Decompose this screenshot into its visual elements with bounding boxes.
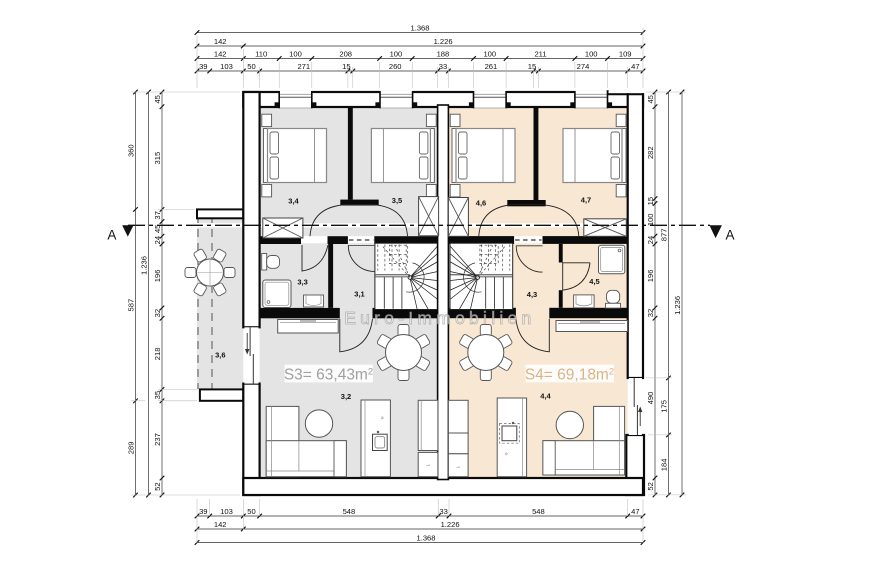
svg-text:237: 237 <box>153 433 162 446</box>
svg-text:3,2: 3,2 <box>341 392 351 401</box>
svg-text:289: 289 <box>126 442 135 455</box>
svg-text:142: 142 <box>214 49 227 58</box>
svg-text:A: A <box>107 227 116 242</box>
svg-text:33: 33 <box>439 507 447 516</box>
svg-text:1.368: 1.368 <box>410 23 429 32</box>
svg-text:188: 188 <box>437 49 450 58</box>
svg-text:142: 142 <box>214 520 227 529</box>
svg-text:4,6: 4,6 <box>476 199 486 208</box>
svg-text:15: 15 <box>342 62 350 71</box>
svg-text:1.236: 1.236 <box>139 256 148 275</box>
svg-text:196: 196 <box>646 270 655 283</box>
svg-text:45: 45 <box>646 95 655 103</box>
svg-text:50: 50 <box>247 62 255 71</box>
svg-text:3,6: 3,6 <box>215 351 225 360</box>
svg-text:32: 32 <box>646 309 655 317</box>
svg-text:47: 47 <box>631 507 639 516</box>
svg-text:32: 32 <box>153 309 162 317</box>
svg-text:274: 274 <box>577 62 590 71</box>
svg-text:33: 33 <box>439 62 447 71</box>
svg-text:877: 877 <box>659 229 668 242</box>
svg-text:39: 39 <box>199 62 207 71</box>
svg-text:A: A <box>725 227 734 242</box>
svg-text:211: 211 <box>534 49 546 58</box>
svg-text:3,4: 3,4 <box>288 197 299 206</box>
svg-text:3,3: 3,3 <box>297 278 307 287</box>
svg-text:100: 100 <box>646 213 655 226</box>
svg-text:24: 24 <box>646 236 655 244</box>
svg-text:45: 45 <box>153 225 162 233</box>
svg-text:3,5: 3,5 <box>392 196 402 205</box>
svg-text:315: 315 <box>153 152 162 165</box>
svg-text:208: 208 <box>339 49 352 58</box>
svg-text:100: 100 <box>585 49 598 58</box>
svg-text:271: 271 <box>297 62 310 71</box>
svg-text:548: 548 <box>343 507 356 516</box>
svg-text:110: 110 <box>255 49 267 58</box>
svg-text:100: 100 <box>483 49 496 58</box>
svg-text:260: 260 <box>389 62 402 71</box>
svg-text:4,7: 4,7 <box>581 196 591 205</box>
svg-text:3,1: 3,1 <box>354 290 364 299</box>
svg-text:→: → <box>425 462 431 468</box>
svg-text:52: 52 <box>646 482 655 490</box>
svg-text:142: 142 <box>214 37 227 46</box>
svg-text:24: 24 <box>153 236 162 244</box>
svg-text:587: 587 <box>126 299 135 312</box>
svg-text:→: → <box>455 464 461 470</box>
svg-text:4,5: 4,5 <box>589 277 599 286</box>
svg-text:1.368: 1.368 <box>416 533 435 542</box>
svg-text:15: 15 <box>528 62 536 71</box>
svg-text:4,3: 4,3 <box>527 290 537 299</box>
svg-text:360: 360 <box>126 144 135 157</box>
svg-text:100: 100 <box>289 49 302 58</box>
svg-text:100: 100 <box>390 49 403 58</box>
svg-text:548: 548 <box>532 507 545 516</box>
svg-text:47: 47 <box>631 62 639 71</box>
svg-text:490: 490 <box>646 392 655 405</box>
svg-text:52: 52 <box>153 482 162 490</box>
svg-text:1.226: 1.226 <box>434 37 453 46</box>
svg-text:103: 103 <box>220 507 233 516</box>
svg-text:282: 282 <box>646 146 655 159</box>
svg-text:39: 39 <box>199 507 207 516</box>
svg-text:15: 15 <box>646 197 655 205</box>
svg-text:50: 50 <box>247 507 255 516</box>
svg-text:1.226: 1.226 <box>441 520 460 529</box>
svg-text:4,4: 4,4 <box>540 392 551 401</box>
svg-text:218: 218 <box>153 348 162 361</box>
svg-text:1.236: 1.236 <box>673 296 682 315</box>
svg-text:175: 175 <box>659 400 668 413</box>
svg-text:261: 261 <box>485 62 498 71</box>
svg-text:103: 103 <box>220 62 233 71</box>
svg-text:196: 196 <box>153 270 162 283</box>
svg-text:184: 184 <box>659 459 668 472</box>
svg-text:35: 35 <box>153 391 162 399</box>
svg-text:109: 109 <box>619 49 632 58</box>
svg-text:37: 37 <box>153 211 162 219</box>
svg-text:S4= 69,18m2: S4= 69,18m2 <box>525 366 614 383</box>
svg-text:45: 45 <box>153 95 162 103</box>
svg-text:S3= 63,43m2: S3= 63,43m2 <box>284 366 373 383</box>
